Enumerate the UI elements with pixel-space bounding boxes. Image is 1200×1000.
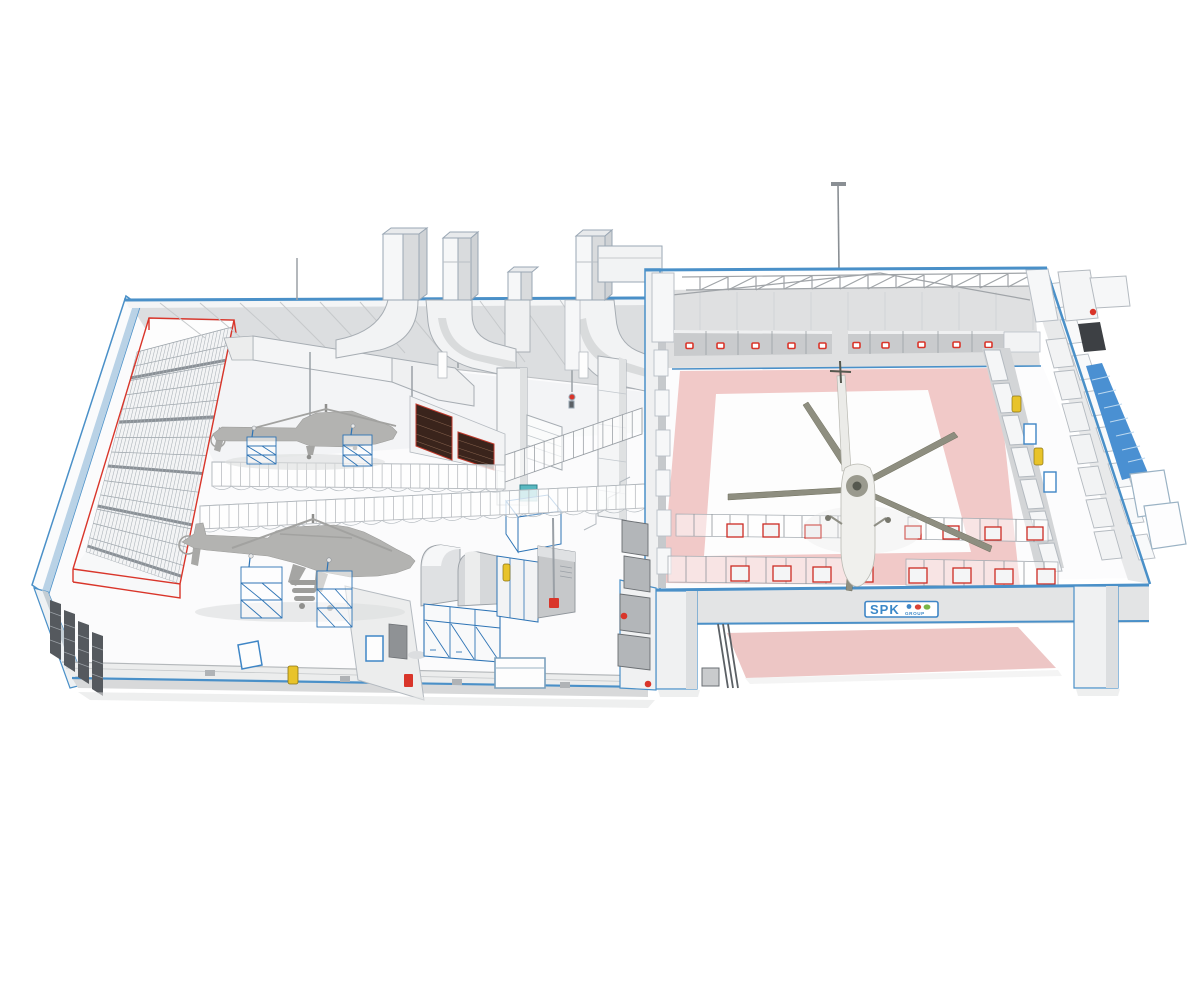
svg-text:GROUP: GROUP [905, 611, 925, 616]
svg-text:SPK: SPK [870, 602, 900, 617]
